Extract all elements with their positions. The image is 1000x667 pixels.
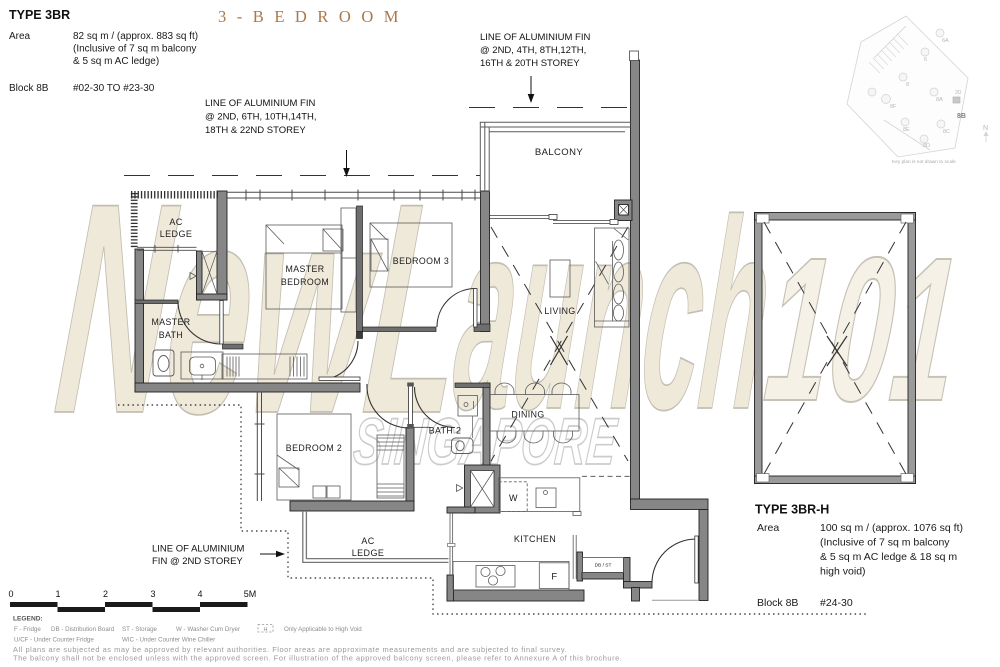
svg-text:20: 20	[955, 90, 961, 96]
svg-text:LINE OF ALUMINIUM FIN: LINE OF ALUMINIUM FIN	[205, 98, 315, 109]
svg-text:LINE OF ALUMINIUM: LINE OF ALUMINIUM	[152, 544, 244, 555]
svg-text:H: H	[264, 627, 268, 633]
svg-text:TYPE 3BR-H: TYPE 3BR-H	[755, 503, 829, 517]
svg-text:3: 3	[150, 589, 155, 599]
svg-text:Key plan is not drawn to scale: Key plan is not drawn to scale	[892, 159, 956, 165]
svg-text:@ 2ND, 6TH, 10TH,14TH,: @ 2ND, 6TH, 10TH,14TH,	[205, 112, 317, 123]
svg-text:LIVING: LIVING	[544, 306, 575, 316]
svg-text:18TH & 22ND STOREY: 18TH & 22ND STOREY	[205, 125, 306, 136]
svg-text:#02-30 TO #23-30: #02-30 TO #23-30	[73, 83, 155, 94]
svg-text:LEGEND:: LEGEND:	[13, 616, 43, 623]
svg-text:101: 101	[758, 214, 966, 444]
svg-text:high void): high void)	[820, 566, 866, 578]
svg-text:8: 8	[906, 82, 909, 88]
svg-text:F - Fridge: F - Fridge	[14, 626, 41, 633]
svg-text:5M: 5M	[244, 589, 257, 599]
svg-text:1: 1	[55, 589, 60, 599]
svg-text:8B: 8B	[957, 113, 966, 120]
svg-text:AC: AC	[169, 217, 182, 227]
svg-text:6A: 6A	[942, 38, 949, 44]
svg-text:BATH 2: BATH 2	[429, 426, 462, 436]
svg-text:AC: AC	[361, 536, 374, 546]
svg-text:BEDROOM 3: BEDROOM 3	[393, 256, 449, 266]
svg-text:U/CF - Under Counter Fridge: U/CF - Under Counter Fridge	[14, 637, 94, 644]
svg-text:& 5 sq m AC ledge): & 5 sq m AC ledge)	[73, 56, 159, 67]
svg-text:Only Applicable to High Void: Only Applicable to High Void	[284, 626, 362, 633]
svg-text:BEDROOM 2: BEDROOM 2	[286, 443, 342, 453]
svg-text:BATH: BATH	[159, 330, 183, 340]
svg-text:2: 2	[103, 589, 108, 599]
svg-text:FIN @ 2ND STOREY: FIN @ 2ND STOREY	[152, 556, 243, 567]
svg-text:3 - B E D R O O M: 3 - B E D R O O M	[218, 7, 402, 26]
svg-text:Block 8B: Block 8B	[9, 83, 49, 94]
svg-text:The balcony shall not be enclo: The balcony shall not be enclosed unless…	[13, 654, 622, 663]
svg-text:4: 4	[197, 589, 202, 599]
svg-text:8E: 8E	[903, 127, 910, 133]
svg-text:8C: 8C	[943, 129, 950, 135]
svg-text:KITCHEN: KITCHEN	[514, 534, 556, 544]
svg-text:LEDGE: LEDGE	[160, 229, 193, 239]
svg-text:WIC - Under Counter Wine Chill: WIC - Under Counter Wine Chiller	[122, 637, 215, 644]
svg-text:LEDGE: LEDGE	[352, 548, 385, 558]
svg-text:16TH & 20TH STOREY: 16TH & 20TH STOREY	[480, 58, 580, 69]
svg-text:100 sq m / (approx. 1076 sq ft: 100 sq m / (approx. 1076 sq ft)	[820, 522, 963, 534]
svg-text:BEDROOM: BEDROOM	[281, 277, 329, 287]
svg-text:TYPE 3BR: TYPE 3BR	[9, 8, 70, 22]
svg-text:8D: 8D	[923, 143, 930, 149]
svg-text:W - Washer Cum Dryer: W - Washer Cum Dryer	[176, 626, 240, 633]
svg-text:MASTER: MASTER	[285, 264, 324, 274]
svg-text:& 5 sq m AC ledge & 18 sq m: & 5 sq m AC ledge & 18 sq m	[820, 551, 957, 563]
svg-text:MASTER: MASTER	[151, 317, 190, 327]
svg-text:Area: Area	[757, 522, 779, 534]
svg-text:#24-30: #24-30	[820, 597, 853, 609]
svg-text:BALCONY: BALCONY	[535, 147, 583, 158]
svg-text:Block 8B: Block 8B	[757, 597, 798, 609]
svg-text:Area: Area	[9, 31, 31, 42]
svg-text:0: 0	[8, 589, 13, 599]
svg-text:W: W	[509, 493, 518, 503]
svg-text:@ 2ND, 4TH, 8TH,12TH,: @ 2ND, 4TH, 8TH,12TH,	[480, 45, 586, 56]
svg-text:N: N	[983, 125, 988, 132]
svg-text:DB / ST: DB / ST	[595, 563, 612, 569]
svg-text:82 sq m / (approx. 883 sq ft): 82 sq m / (approx. 883 sq ft)	[73, 31, 198, 42]
svg-text:8A: 8A	[936, 97, 943, 103]
svg-text:6: 6	[924, 57, 927, 63]
svg-text:LINE OF ALUMINIUM FIN: LINE OF ALUMINIUM FIN	[480, 32, 590, 43]
svg-text:DB - Distribution Board: DB - Distribution Board	[51, 626, 115, 633]
svg-text:ST - Storage: ST - Storage	[122, 626, 158, 633]
svg-text:DINING: DINING	[511, 410, 544, 420]
svg-text:(Inclusive of 7 sq m balcony: (Inclusive of 7 sq m balcony	[820, 537, 950, 549]
svg-text:(Inclusive of 7 sq m balcony: (Inclusive of 7 sq m balcony	[73, 44, 196, 55]
svg-text:8F: 8F	[890, 104, 897, 110]
svg-text:F: F	[551, 572, 557, 583]
